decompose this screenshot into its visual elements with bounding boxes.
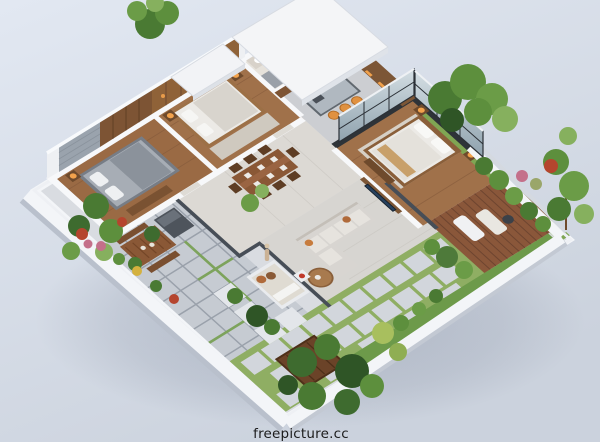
foliage-blob [393, 315, 409, 331]
foliage-blob [440, 108, 464, 132]
foliage-blob [314, 334, 340, 360]
foliage-blob [489, 170, 509, 190]
foliage-blob [144, 226, 160, 242]
foliage-blob [62, 242, 80, 260]
flower-bush-pink [516, 170, 528, 182]
foliage-blob [492, 106, 518, 132]
screenshot-root: freepicture.cc [0, 0, 600, 442]
flower-bush-red [169, 294, 179, 304]
foliage-blob [520, 202, 538, 220]
foliage-blob [455, 261, 473, 279]
foliage-blob [424, 239, 440, 255]
foliage-blob [334, 389, 360, 415]
foliage-blob [475, 157, 493, 175]
figurine-body [265, 249, 269, 261]
flower-bush-pink [96, 241, 106, 251]
foliage-blob [246, 305, 268, 327]
flower-bush-red [76, 228, 88, 240]
foliage-blob [574, 204, 594, 224]
flower-bush-yellow [132, 266, 142, 276]
foliage-blob [372, 322, 394, 344]
flower-bush-pink [84, 240, 93, 249]
foliage-blob [150, 280, 162, 292]
foliage-blob [464, 98, 492, 126]
foliage-blob [389, 343, 407, 361]
foliage-blob [535, 216, 551, 232]
foliage-blob [547, 197, 571, 221]
flower-bush-red [544, 159, 558, 173]
foliage-blob [83, 193, 109, 219]
foliage-blob [264, 319, 280, 335]
foliage-blob [429, 289, 443, 303]
flower-bush-red [117, 217, 127, 227]
watermark-text: freepicture.cc [253, 426, 349, 442]
foliage-blob [505, 187, 523, 205]
foliage-blob [530, 178, 542, 190]
foliage-blob [278, 375, 298, 395]
foliage-blob [287, 347, 317, 377]
foliage-blob [241, 194, 259, 212]
foliage-blob [559, 127, 577, 145]
foliage-blob [127, 1, 147, 21]
figurine [265, 244, 270, 261]
foliage-blob [360, 374, 384, 398]
foliage-blob [255, 184, 269, 198]
foliage-blob [412, 302, 426, 316]
figurine-head [265, 244, 270, 249]
foliage-blob [227, 288, 243, 304]
foliage-blob [113, 253, 125, 265]
floor-plan-render: freepicture.cc [0, 0, 600, 442]
foliage-blob [298, 382, 326, 410]
foliage-blob [559, 171, 589, 201]
wall-sconce-1 [161, 94, 165, 98]
